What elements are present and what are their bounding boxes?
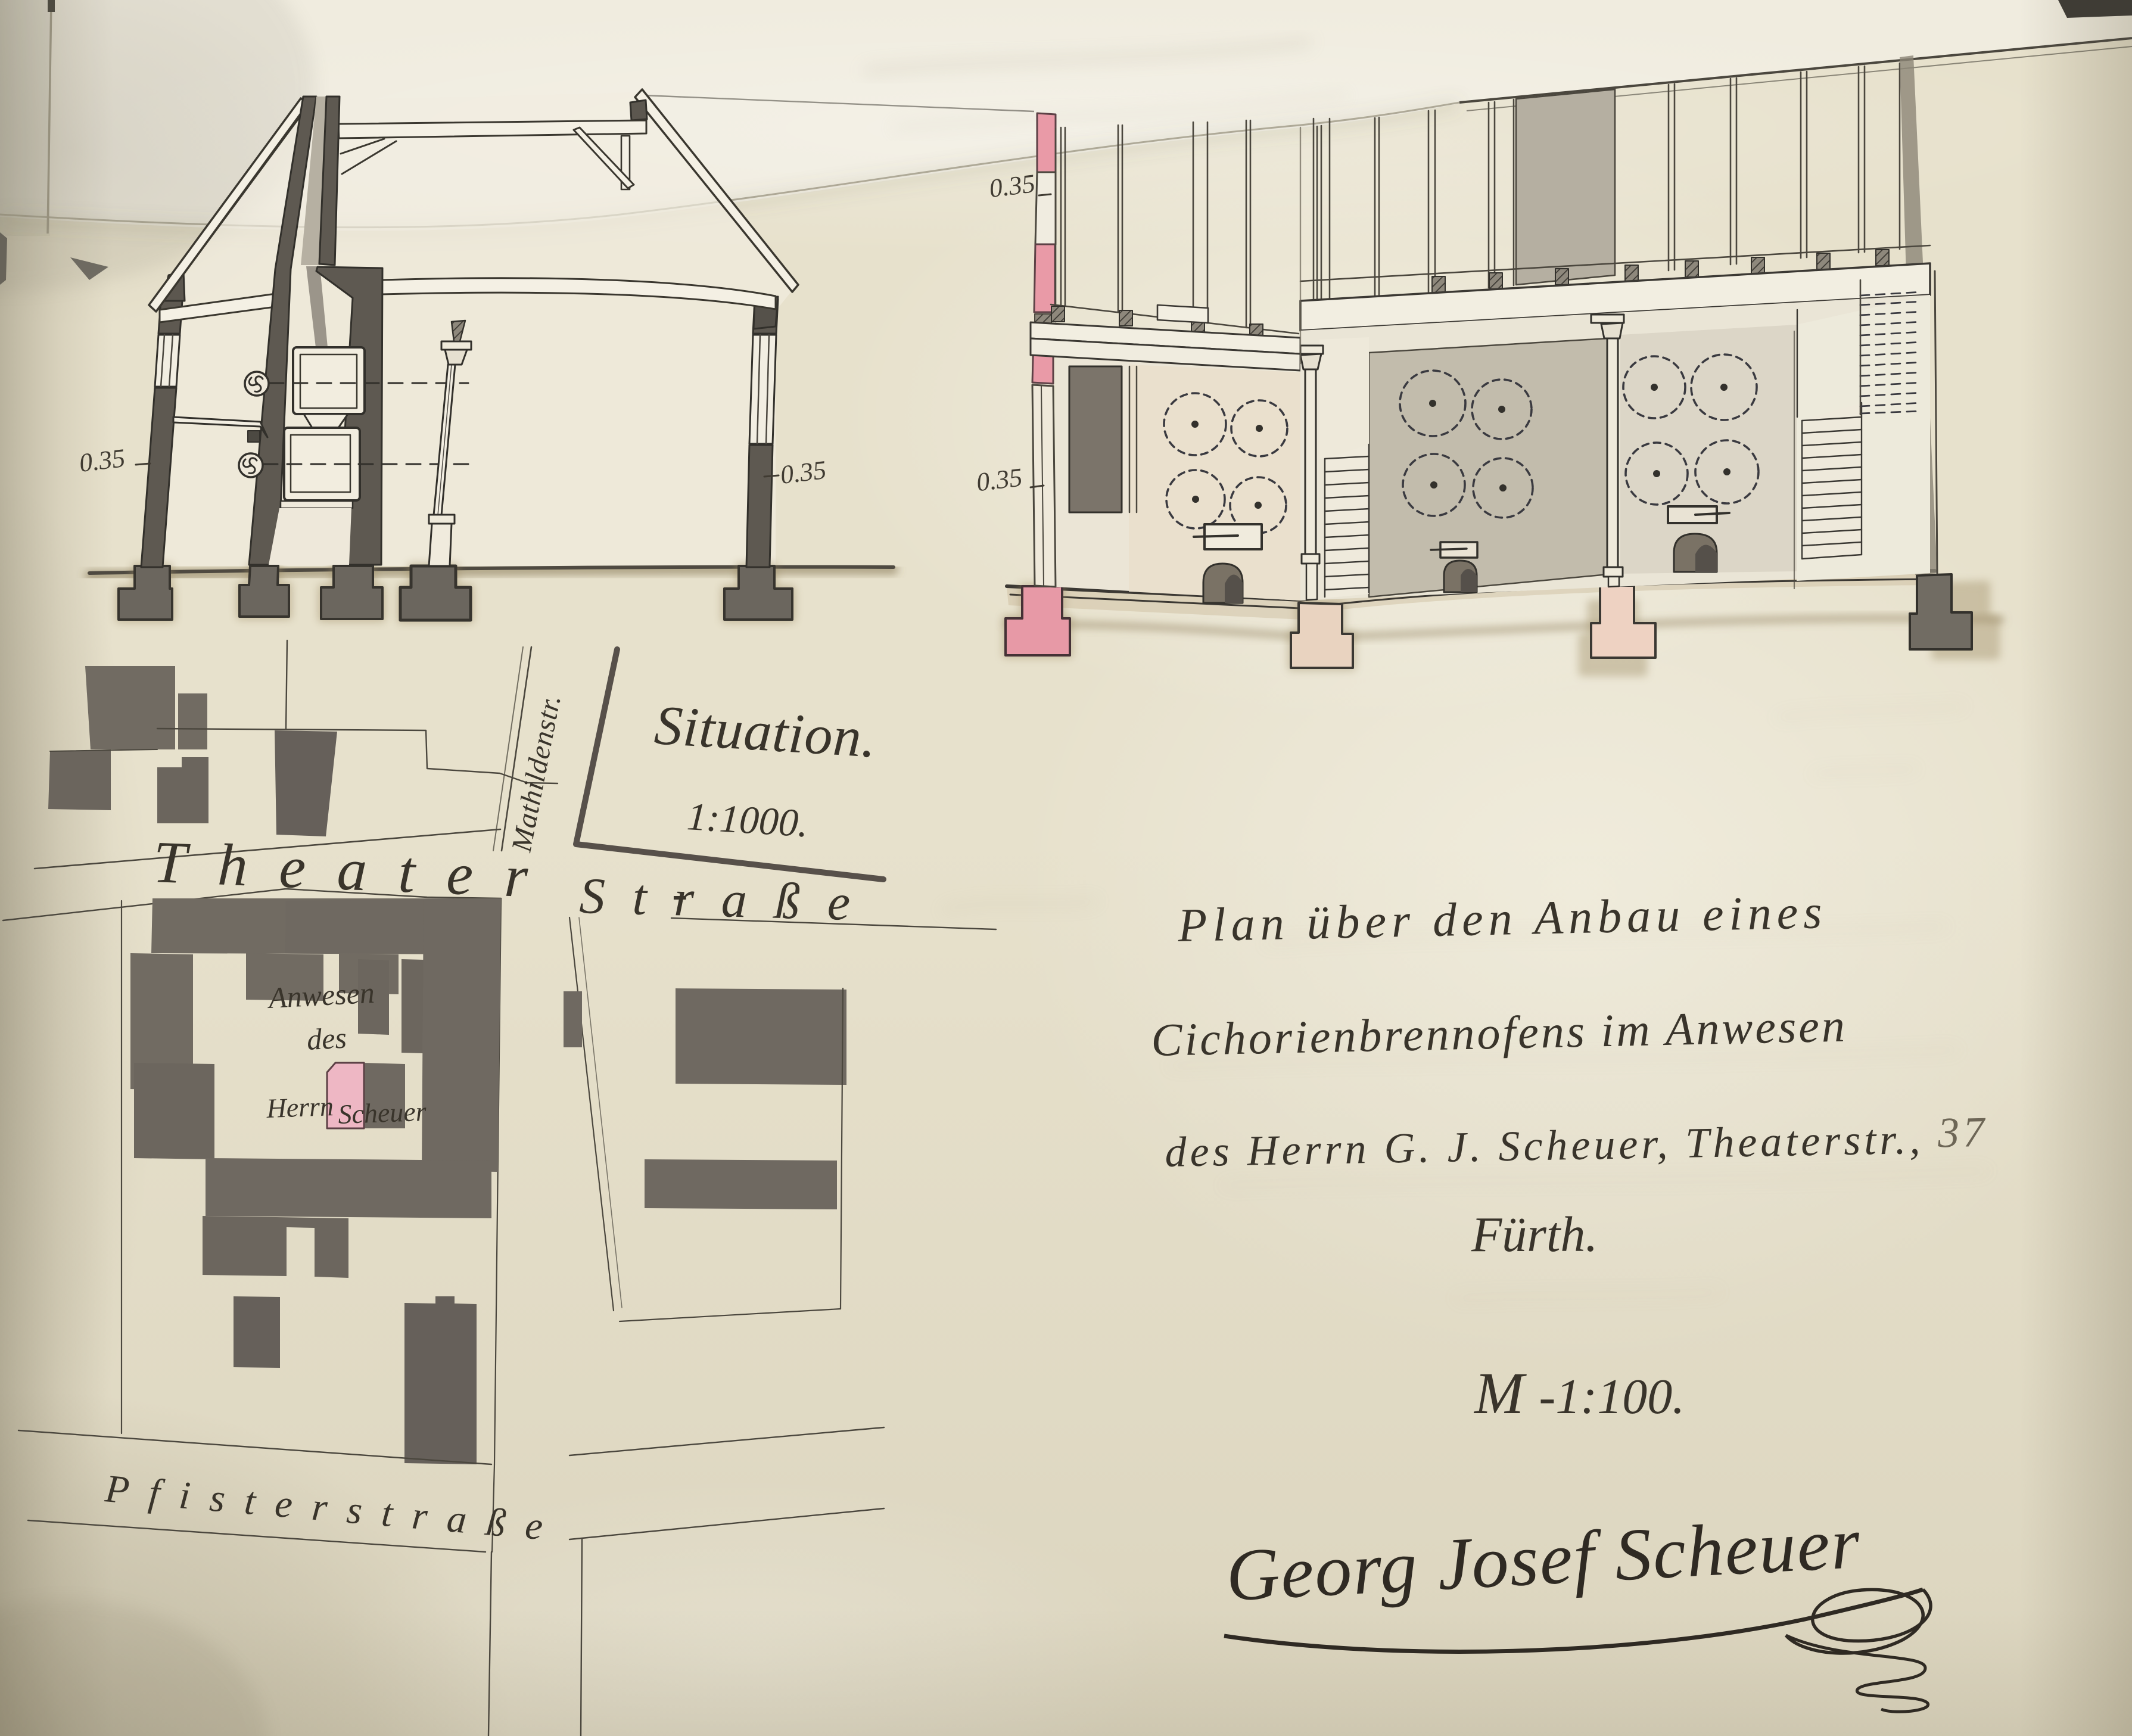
svg-text:0.35: 0.35 <box>975 462 1023 497</box>
svg-text:Herrn: Herrn <box>266 1091 334 1124</box>
svg-text:Fürth.: Fürth. <box>1471 1207 1598 1262</box>
svg-text:des: des <box>306 1021 347 1056</box>
svg-text:Straße: Straße <box>579 867 879 932</box>
svg-text:Scheuer: Scheuer <box>338 1096 428 1130</box>
svg-text:0.35: 0.35 <box>779 455 827 490</box>
svg-text:1:1000.: 1:1000. <box>686 795 810 845</box>
svg-text:M -1:100.: M -1:100. <box>1473 1360 1685 1426</box>
svg-text:0.35: 0.35 <box>988 169 1037 203</box>
svg-text:0.35: 0.35 <box>77 443 126 478</box>
svg-text:Anwesen: Anwesen <box>266 976 375 1015</box>
